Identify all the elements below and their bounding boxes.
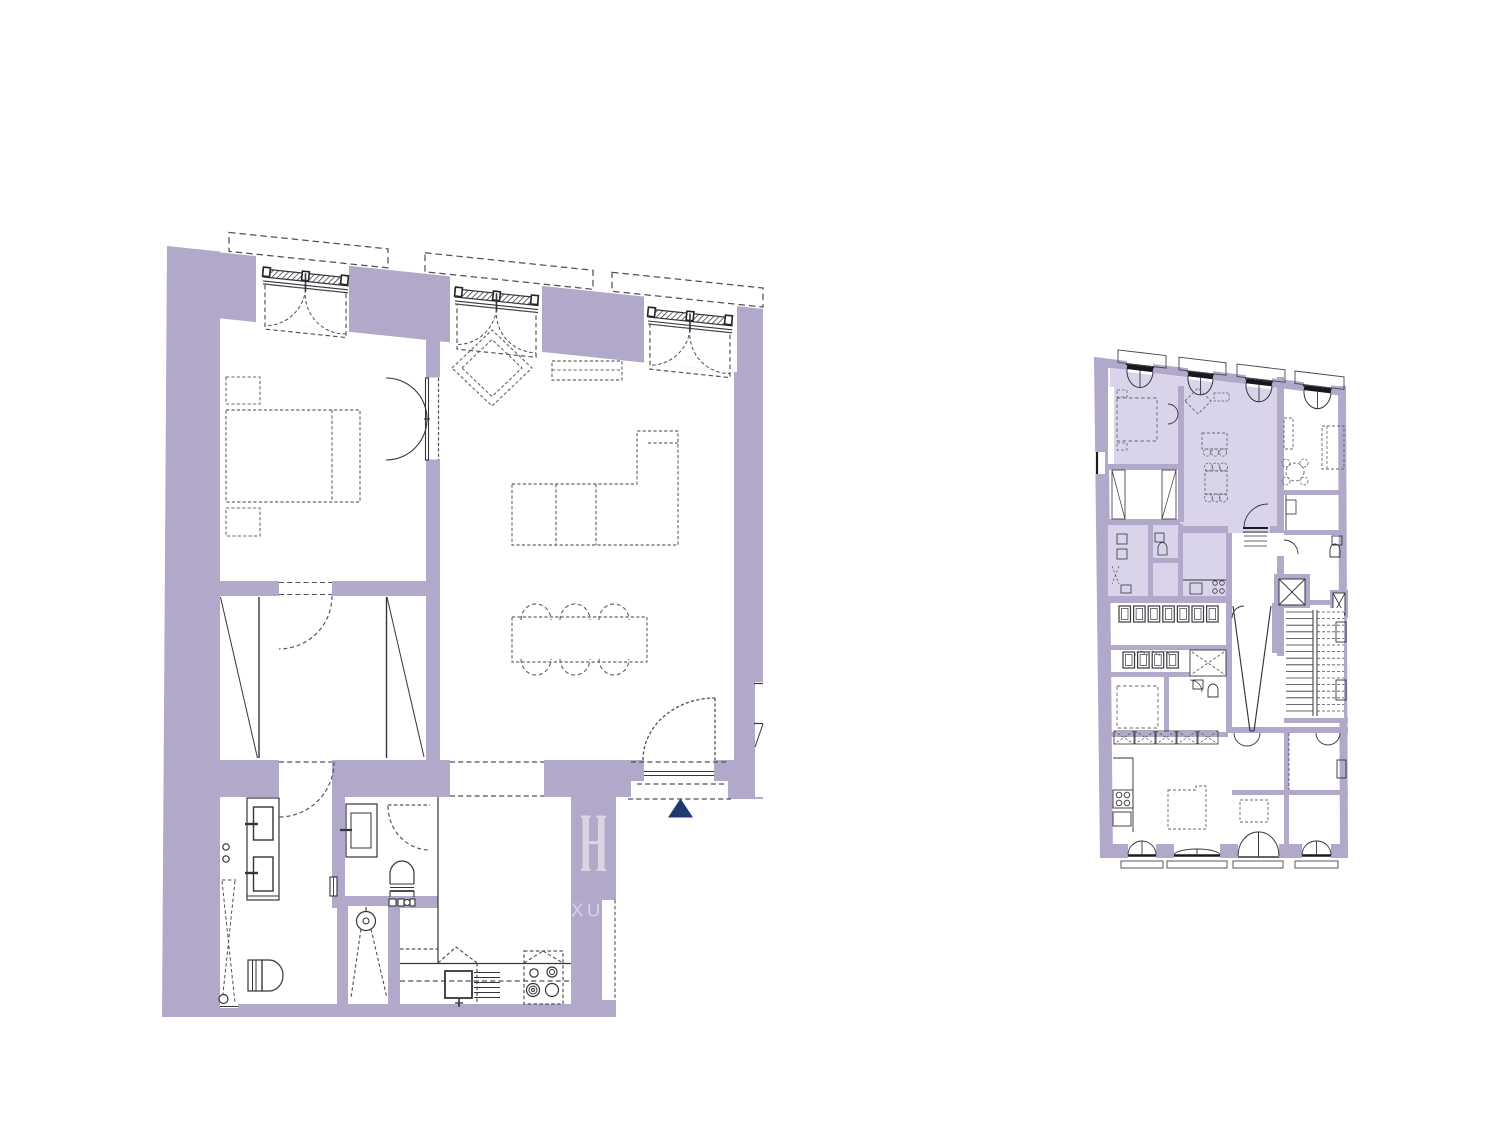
svg-text:XU: XU [571,900,604,921]
